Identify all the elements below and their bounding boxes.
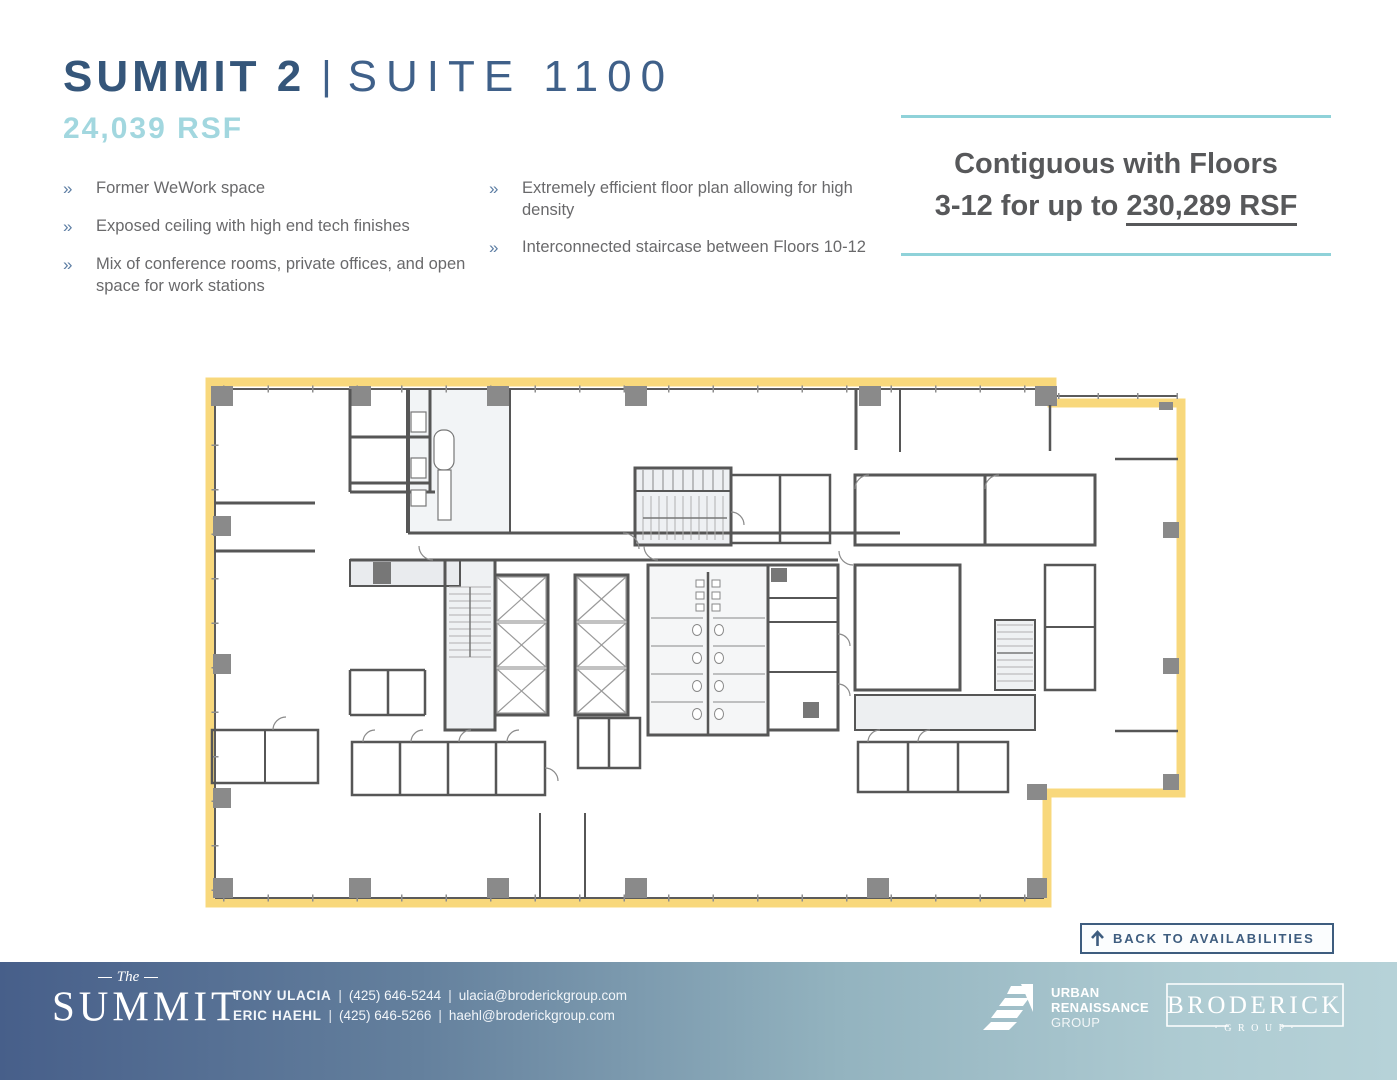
- bullet-marker: »: [489, 237, 522, 259]
- back-button-label: BACK TO AVAILABILITIES: [1113, 931, 1315, 946]
- urg-line3: GROUP: [1051, 1015, 1149, 1030]
- bullet-marker: »: [63, 216, 96, 238]
- callout-text: Contiguous with Floors 3-12 for up to 23…: [901, 143, 1331, 227]
- accent-rule-bottom: [901, 253, 1331, 256]
- callout-line1: Contiguous with Floors: [901, 143, 1331, 185]
- broderick-group-logo: BRODERICK · G R O U P ·: [1163, 980, 1347, 1045]
- bullet-marker: »: [63, 178, 96, 200]
- flyer-page: SUMMIT 2 | SUITE 1100 24,039 RSF » Forme…: [0, 0, 1397, 1080]
- footer: The SUMMIT TONY ULACIA|(425) 646-5244|ul…: [0, 962, 1397, 1080]
- broderick-name: BRODERICK: [1167, 992, 1343, 1019]
- contact-line: ERIC HAEHL|(425) 646-5266|haehl@broderic…: [233, 1006, 627, 1026]
- features-left-column: » Former WeWork space » Exposed ceiling …: [63, 178, 483, 313]
- callout-rsf-underlined: 230,289 RSF: [1126, 190, 1297, 226]
- contact-info: TONY ULACIA|(425) 646-5244|ulacia@broder…: [233, 986, 627, 1026]
- broderick-group-label: · G R O U P ·: [1214, 1023, 1295, 1034]
- urban-renaissance-icon: [983, 982, 1041, 1032]
- list-item: » Mix of conference rooms, private offic…: [63, 254, 483, 297]
- contact-phone: (425) 646-5266: [339, 1008, 431, 1023]
- contact-line: TONY ULACIA|(425) 646-5244|ulacia@broder…: [233, 986, 627, 1006]
- feature-text: Former WeWork space: [96, 178, 265, 200]
- contact-separator: |: [438, 1008, 442, 1023]
- callout-line2: 3-12 for up to 230,289 RSF: [901, 185, 1331, 227]
- room-fills: [215, 389, 1049, 898]
- urg-line2: RENAISSANCE: [1051, 1000, 1149, 1015]
- list-item: » Exposed ceiling with high end tech fin…: [63, 216, 483, 238]
- feature-text: Interconnected staircase between Floors …: [522, 237, 866, 259]
- urban-renaissance-logo: URBAN RENAISSANCE GROUP: [983, 982, 1149, 1032]
- contact-email[interactable]: haehl@broderickgroup.com: [449, 1008, 615, 1023]
- title-separator: |: [321, 54, 331, 99]
- feature-text: Extremely efficient floor plan allowing …: [522, 178, 889, 221]
- bullet-marker: »: [489, 178, 522, 221]
- contiguous-callout: Contiguous with Floors 3-12 for up to 23…: [901, 115, 1331, 256]
- list-item: » Extremely efficient floor plan allowin…: [489, 178, 889, 221]
- accent-rule-top: [901, 115, 1331, 118]
- building-name: SUMMIT 2: [63, 52, 305, 102]
- back-to-availabilities-button[interactable]: BACK TO AVAILABILITIES: [1080, 923, 1334, 954]
- contact-name: TONY ULACIA: [233, 988, 331, 1003]
- summit-logo-name: SUMMIT: [52, 983, 204, 1029]
- urban-renaissance-text: URBAN RENAISSANCE GROUP: [1051, 985, 1149, 1030]
- header: SUMMIT 2 | SUITE 1100 24,039 RSF: [63, 52, 674, 146]
- page-title: SUMMIT 2 | SUITE 1100: [63, 52, 674, 102]
- floor-plan: [203, 372, 1193, 912]
- contact-separator: |: [338, 988, 342, 1003]
- list-item: » Former WeWork space: [63, 178, 483, 200]
- features-right-column: » Extremely efficient floor plan allowin…: [489, 178, 889, 275]
- contact-email[interactable]: ulacia@broderickgroup.com: [459, 988, 627, 1003]
- list-item: » Interconnected staircase between Floor…: [489, 237, 889, 259]
- up-arrow-icon: [1090, 930, 1105, 947]
- feature-text: Mix of conference rooms, private offices…: [96, 254, 483, 297]
- contact-phone: (425) 646-5244: [349, 988, 441, 1003]
- urg-line1: URBAN: [1051, 985, 1149, 1000]
- callout-line2-prefix: 3-12 for up to: [935, 190, 1127, 222]
- contact-separator: |: [329, 1008, 333, 1023]
- summit-logo: The SUMMIT: [52, 970, 204, 1028]
- contact-name: ERIC HAEHL: [233, 1008, 322, 1023]
- suite-name: SUITE 1100: [348, 52, 674, 102]
- contact-separator: |: [448, 988, 452, 1003]
- feature-text: Exposed ceiling with high end tech finis…: [96, 216, 410, 238]
- bullet-marker: »: [63, 254, 96, 297]
- suite-size: 24,039 RSF: [63, 112, 674, 146]
